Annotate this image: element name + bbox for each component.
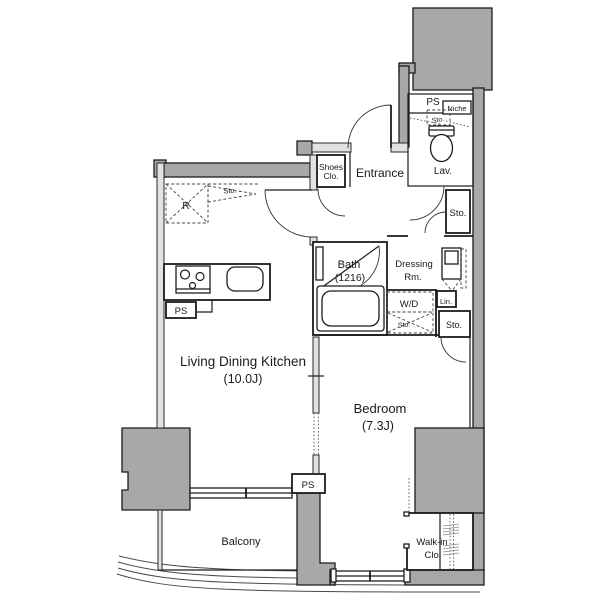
label-balcony: Balcony — [221, 536, 261, 548]
label-shoes-2: Clo. — [323, 171, 338, 181]
shoes-closet-door-arc — [318, 189, 345, 216]
lavatory-door-arc — [410, 186, 444, 220]
label-sto-niche: Sto. — [431, 116, 444, 125]
washbasin-icon — [442, 248, 466, 291]
wall-hall-ldk-upper — [310, 155, 317, 190]
floorplan-canvas: PS Niche Sto. Lav. Sto. Entrance Shoes C… — [0, 0, 600, 600]
bedroom-window — [331, 569, 410, 582]
wall-entrance-front-right — [391, 143, 408, 152]
wall-ldk-bedroom-upper — [313, 337, 319, 413]
bathtub-icon — [317, 286, 384, 331]
balcony-left-edge — [158, 510, 162, 570]
label-walkin-1: Walk-in — [416, 537, 447, 548]
label-ps-kitchen: PS — [175, 306, 188, 317]
stove-icon — [176, 266, 210, 293]
label-bedroom-1: Bedroom — [354, 401, 407, 416]
label-bath-1: Bath — [338, 259, 361, 271]
wall-ldk-left — [157, 163, 164, 428]
label-lin: Lin. — [440, 297, 452, 306]
label-ps-top: PS — [426, 97, 440, 108]
label-lav: Lav. — [434, 166, 452, 177]
label-wd: W/D — [400, 299, 419, 310]
label-refrigerator: R — [182, 201, 189, 212]
label-dressing-2: Rm. — [404, 272, 421, 283]
entrance-door-arc — [348, 105, 391, 148]
label-sto-bedroom: Sto. — [446, 320, 462, 330]
label-ldk-2: (10.0J) — [224, 372, 263, 386]
label-sto-hall: Sto. — [450, 208, 467, 219]
ldk-balcony-window — [190, 488, 292, 498]
label-bath-2: (1216) — [335, 272, 365, 284]
label-walkin-2: Clo. — [425, 550, 442, 561]
floorplan-svg: PS Niche Sto. Lav. Sto. Entrance Shoes C… — [0, 0, 600, 600]
wall-ldk-bedroom-lower — [313, 455, 319, 474]
label-ps-balcony: PS — [302, 480, 315, 491]
label-niche: Niche — [447, 104, 466, 113]
wall-block-top-right — [413, 8, 492, 90]
label-sto-kitchen: Sto. — [223, 186, 237, 196]
label-ldk-1: Living Dining Kitchen — [180, 354, 306, 369]
walkin-door-opening — [406, 515, 410, 546]
label-bedroom-2: (7.3J) — [362, 419, 394, 433]
sink-icon — [227, 267, 263, 291]
wall-entrance-left-pillar — [297, 141, 312, 155]
label-entrance: Entrance — [356, 166, 404, 180]
label-dressing-1: Dressing — [395, 259, 433, 270]
wall-balcony-divider — [297, 493, 335, 585]
wall-ldk-top — [164, 163, 310, 177]
wall-bottom — [405, 570, 484, 585]
ldk-door-arc — [265, 190, 312, 237]
kitchen-area — [164, 184, 270, 318]
bath-counter — [316, 247, 323, 280]
wall-block-bedroom-right — [415, 428, 484, 513]
counter-step — [197, 300, 212, 312]
wall-entrance-front-left — [312, 143, 351, 152]
room-bath — [313, 242, 387, 335]
wall-left-pillar — [122, 428, 190, 510]
label-sto-wd: Sto. — [398, 321, 411, 329]
bedroom-storage-door-arc — [441, 337, 466, 362]
toilet-icon — [429, 126, 454, 162]
